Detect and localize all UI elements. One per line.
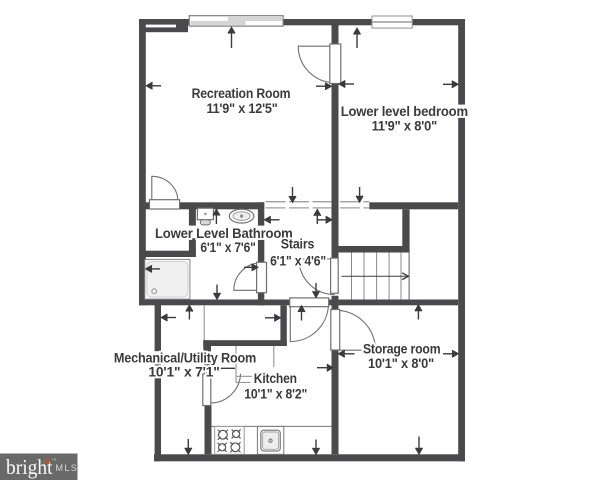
- svg-text:6'1" x 7'6": 6'1" x 7'6": [200, 240, 255, 255]
- svg-text:Kitchen: Kitchen: [254, 371, 297, 387]
- svg-text:Recreation Room: Recreation Room: [192, 86, 291, 102]
- svg-text:11'9" x 12'5": 11'9" x 12'5": [206, 101, 277, 116]
- svg-text:10'1" x 8'2": 10'1" x 8'2": [244, 386, 307, 401]
- svg-text:Stairs: Stairs: [281, 237, 315, 253]
- svg-text:10'1" x 8'0": 10'1" x 8'0": [368, 356, 434, 371]
- svg-text:10'1" x 7'1": 10'1" x 7'1": [148, 365, 219, 380]
- svg-text:Storage room: Storage room: [363, 342, 441, 358]
- svg-text:MLS: MLS: [55, 463, 78, 473]
- svg-text:11'9" x 8'0": 11'9" x 8'0": [372, 119, 437, 134]
- svg-text:6'1" x 4'6": 6'1" x 4'6": [270, 254, 326, 269]
- svg-text:bright: bright: [6, 455, 53, 479]
